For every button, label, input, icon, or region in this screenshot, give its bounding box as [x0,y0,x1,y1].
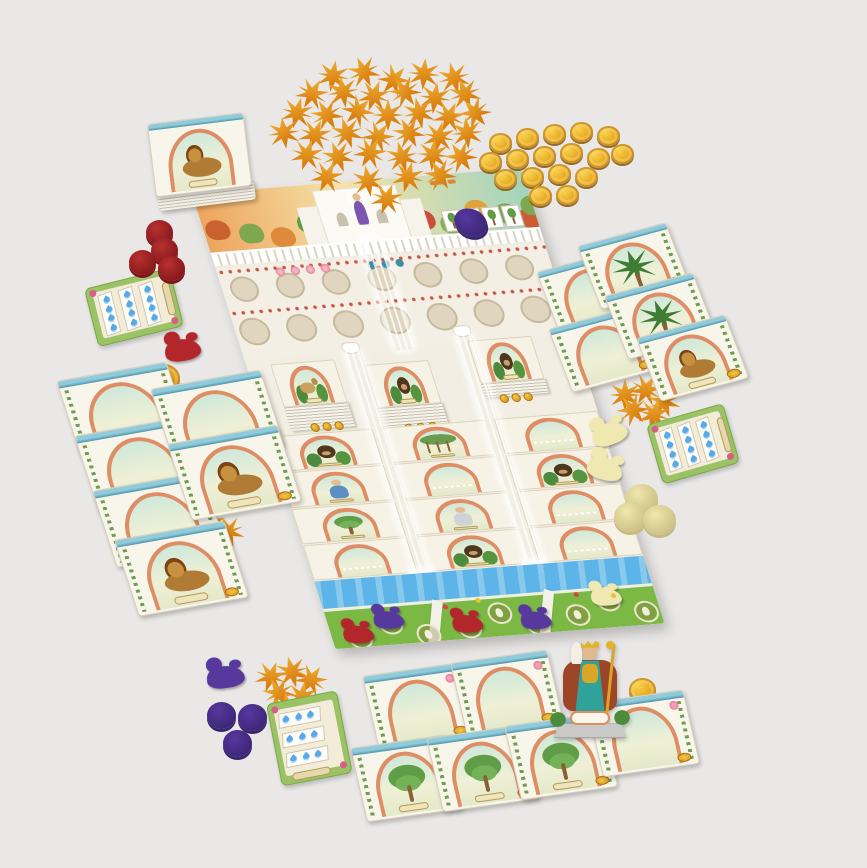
water-drop-icon [314,749,324,759]
scene [0,0,867,868]
score-pad [646,403,740,485]
gold-coin [489,133,512,153]
gold-coin [548,164,571,184]
flower-dot [170,316,178,324]
garden-treeline [236,223,266,244]
water-drop-icon [102,296,111,306]
gold-coin [570,122,593,142]
gold-coin [575,167,598,187]
gardener-space [563,603,594,626]
water-drop-icon [672,460,681,470]
meeple-part [339,618,356,631]
gold-coin [597,126,620,146]
flower-dot [726,453,735,462]
motif-woman [328,484,350,499]
card-deck-top [147,112,252,197]
meeple-part [229,658,242,669]
action-circle [410,261,446,289]
gold-coin [556,185,579,205]
motif-lion [188,178,218,189]
card-deck [147,112,254,213]
water-drop-icon [145,295,154,305]
gardener-space [485,601,516,624]
gold-coin [516,128,539,148]
meeple-part [369,603,386,616]
king-crown [581,640,600,648]
arch-window [520,416,583,451]
arch-window [136,535,230,610]
water-drop-icon [282,715,292,725]
arch-window [306,470,369,505]
gardener-meeple-purple [368,602,406,629]
arch-window [419,461,482,496]
water-drop-icon [127,309,136,319]
water-drop-icon [142,286,151,296]
arch-window [408,425,471,460]
arch-window [164,125,235,192]
flower-dot [340,761,348,769]
gardener-meeple-red [447,606,485,633]
garden-treeline [408,209,438,230]
action-circle [329,309,368,339]
gardener-meeple-red [162,327,203,363]
standee-nameplate [570,711,611,726]
arch-window [655,328,734,395]
red-player-disc [129,250,156,275]
water-drop-icon [147,304,156,314]
gold-coin [587,148,610,168]
water-drop-icon [310,730,320,740]
meeple-part [586,580,603,593]
water-drop-icon [700,421,709,431]
motif-banyan [431,453,455,458]
action-circle [456,257,492,285]
water-drop-icon [298,732,308,742]
arch-window [318,506,381,541]
arch-window [378,364,430,406]
garden-treeline [203,219,233,240]
action-circle [282,313,321,343]
arch-window [189,439,283,514]
purple-player-disc [238,704,267,731]
water-drop-icon [125,300,134,310]
cream-player-disc [643,505,676,535]
arch-window [430,497,493,532]
standee-foliage [613,709,630,727]
gardener-meeple-purple [204,654,246,691]
gold-coin [529,186,552,206]
water-drop-icon [286,734,296,744]
king-headdress [571,642,582,664]
water-drop-icon [149,313,158,323]
action-circle [235,317,274,347]
motif-tree [341,534,365,539]
action-circle [272,272,308,300]
gold-coin [611,144,634,164]
cream-player-disc [614,502,647,532]
water-drop-icon [294,713,304,723]
vine-border [122,549,146,612]
gold-coin [521,167,544,187]
vine-border [369,685,387,746]
arch-window [283,364,335,406]
water-drop-icon [109,323,118,333]
water-drop-icon [669,451,678,461]
water-drop-icon [705,440,714,450]
water-drop-icon [107,314,116,324]
grass-flower [475,598,482,603]
water-drop-icon [708,450,717,460]
motif-tree [474,791,505,802]
grass-flower [442,604,449,609]
water-drop-icon [702,431,711,441]
grass-flower [573,592,580,597]
red-player-disc [158,256,185,281]
meeple-part [516,604,533,617]
water-drop-icon [129,318,138,328]
motif-man [454,525,478,530]
gold-coin [560,143,583,163]
motif-goat [311,378,319,385]
water-drop-icon [122,291,131,301]
motif-woman [330,498,354,503]
water-drop-icon [301,751,311,761]
garden-treeline [268,226,298,247]
arch-window [442,533,505,568]
arch-window [295,434,358,469]
action-circle [470,298,509,328]
gold-coin [543,124,566,144]
water-drop-icon [306,710,316,720]
gold-coin [506,149,529,169]
motif-tree [398,801,429,812]
meeple-part [448,607,465,620]
king-chest-ornament [582,664,598,684]
publisher-logo [447,179,456,184]
action-circle [502,254,538,282]
king-standee [551,640,629,738]
standee-foliage [549,711,566,729]
gardener-meeple-red [338,616,376,643]
vine-border [357,757,375,818]
purple-player-disc [207,702,236,729]
tile-stack-top [270,359,347,407]
action-circle [227,275,263,303]
motif-lion [173,592,210,606]
king-staff-orb [606,641,614,649]
gold-coin [533,146,556,166]
motif-tree [552,779,583,790]
arch-window [329,542,392,577]
arch-window [554,524,617,559]
water-drop-icon [289,754,299,764]
arch-window [543,488,606,523]
gardener-space [631,600,662,623]
arch-window [480,340,532,382]
water-drop-icon [690,455,699,465]
purple-player-disc [223,730,252,757]
score-pad [266,690,353,786]
motif-banyan [426,441,454,453]
motif-man [452,512,474,527]
motif-lion [226,496,263,510]
